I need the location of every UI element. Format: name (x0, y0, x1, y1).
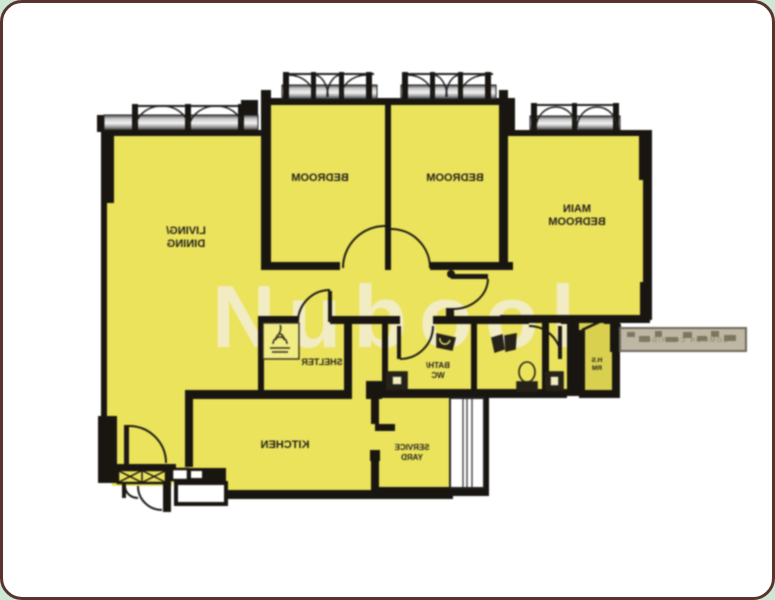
svg-text:H.S: H.S (591, 357, 603, 364)
svg-text:BATH/: BATH/ (425, 361, 450, 370)
svg-text:COMMON CORRIDOR: COMMON CORRIDOR (638, 337, 728, 344)
svg-text:BEDROOM: BEDROOM (426, 172, 483, 184)
svg-text:BEDROOM: BEDROOM (548, 216, 605, 228)
svg-text:WC: WC (431, 371, 445, 380)
svg-text:BEDROOM: BEDROOM (291, 172, 348, 184)
svg-text:SHELTER: SHELTER (301, 357, 343, 367)
svg-text:DINING: DINING (167, 238, 206, 250)
svg-text:KITCHEN: KITCHEN (261, 439, 310, 451)
svg-text:MAIN: MAIN (563, 203, 591, 215)
svg-text:RM: RM (592, 365, 602, 372)
svg-text:LIVING/: LIVING/ (166, 225, 206, 237)
svg-text:SERVICE: SERVICE (394, 443, 430, 452)
svg-text:YARD: YARD (401, 453, 423, 462)
